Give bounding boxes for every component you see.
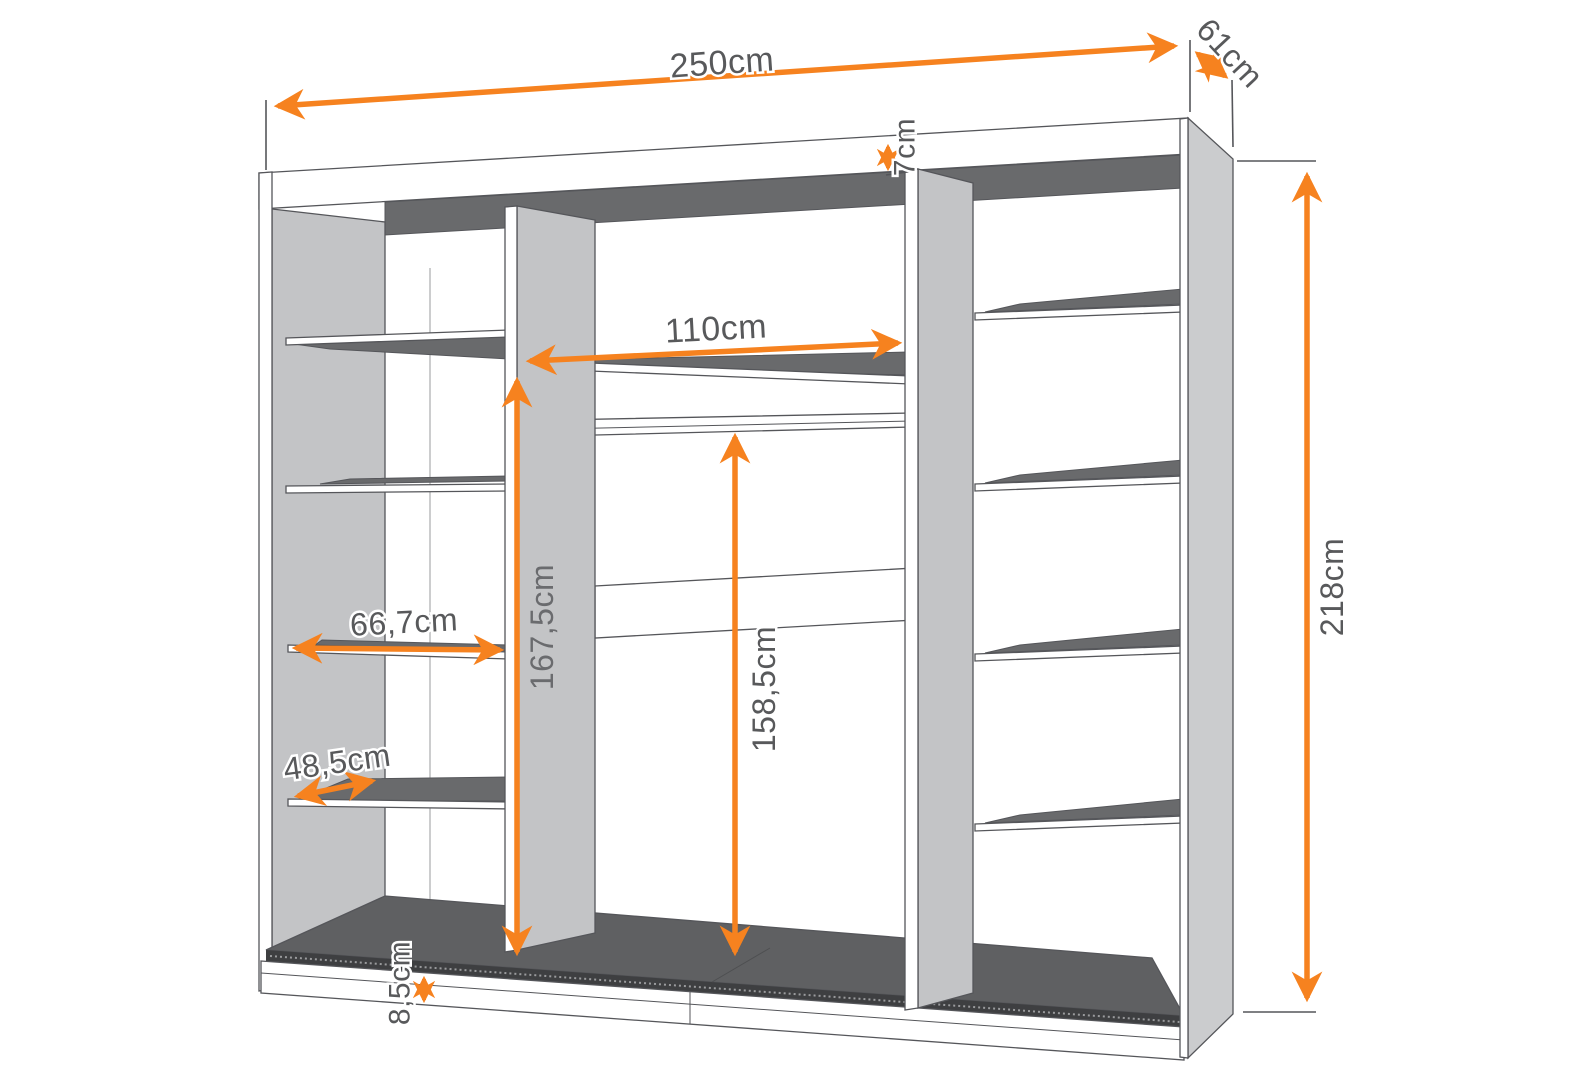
diagram-canvas: 250cm 61cm 218cm 110cm 167,5cm 158,5cm bbox=[0, 0, 1577, 1080]
depth-ext bbox=[1232, 80, 1233, 147]
rail-height-label: 158,5cm bbox=[746, 626, 782, 752]
overall-depth-label: 61cm bbox=[1189, 11, 1270, 94]
top-thickness-label: 7cm bbox=[889, 118, 922, 176]
overall-height-label: 218cm bbox=[1314, 538, 1350, 637]
wardrobe-dimension-diagram: 250cm 61cm 218cm 110cm 167,5cm 158,5cm bbox=[0, 0, 1577, 1080]
upper-shelf-width-label: 66,7cm bbox=[349, 601, 459, 643]
right-shelf-2 bbox=[975, 460, 1183, 491]
hanging-rail bbox=[549, 413, 912, 440]
right-shelf-3 bbox=[975, 629, 1183, 661]
overall-depth-dimension: 61cm bbox=[1189, 11, 1270, 94]
plinth-height-label: 8,5cm bbox=[384, 941, 417, 1025]
top-thickness-dimension: 7cm bbox=[888, 118, 922, 176]
right-shelf-4 bbox=[975, 799, 1183, 831]
right-divider bbox=[905, 169, 973, 1010]
right-side-panel bbox=[1180, 118, 1233, 1058]
rail-height-dimension: 158,5cm bbox=[735, 437, 782, 952]
wardrobe-drawing bbox=[259, 118, 1233, 1060]
overall-height-dimension: 218cm bbox=[1307, 176, 1350, 998]
left-front-edge bbox=[259, 172, 272, 991]
overall-width-dimension: 250cm bbox=[278, 40, 1174, 106]
overall-width-label: 250cm bbox=[669, 40, 776, 85]
left-side-panel bbox=[272, 209, 385, 988]
interior-height-label: 167,5cm bbox=[524, 564, 560, 690]
middle-width-label: 110cm bbox=[664, 307, 768, 350]
right-shelf-1 bbox=[975, 289, 1183, 320]
